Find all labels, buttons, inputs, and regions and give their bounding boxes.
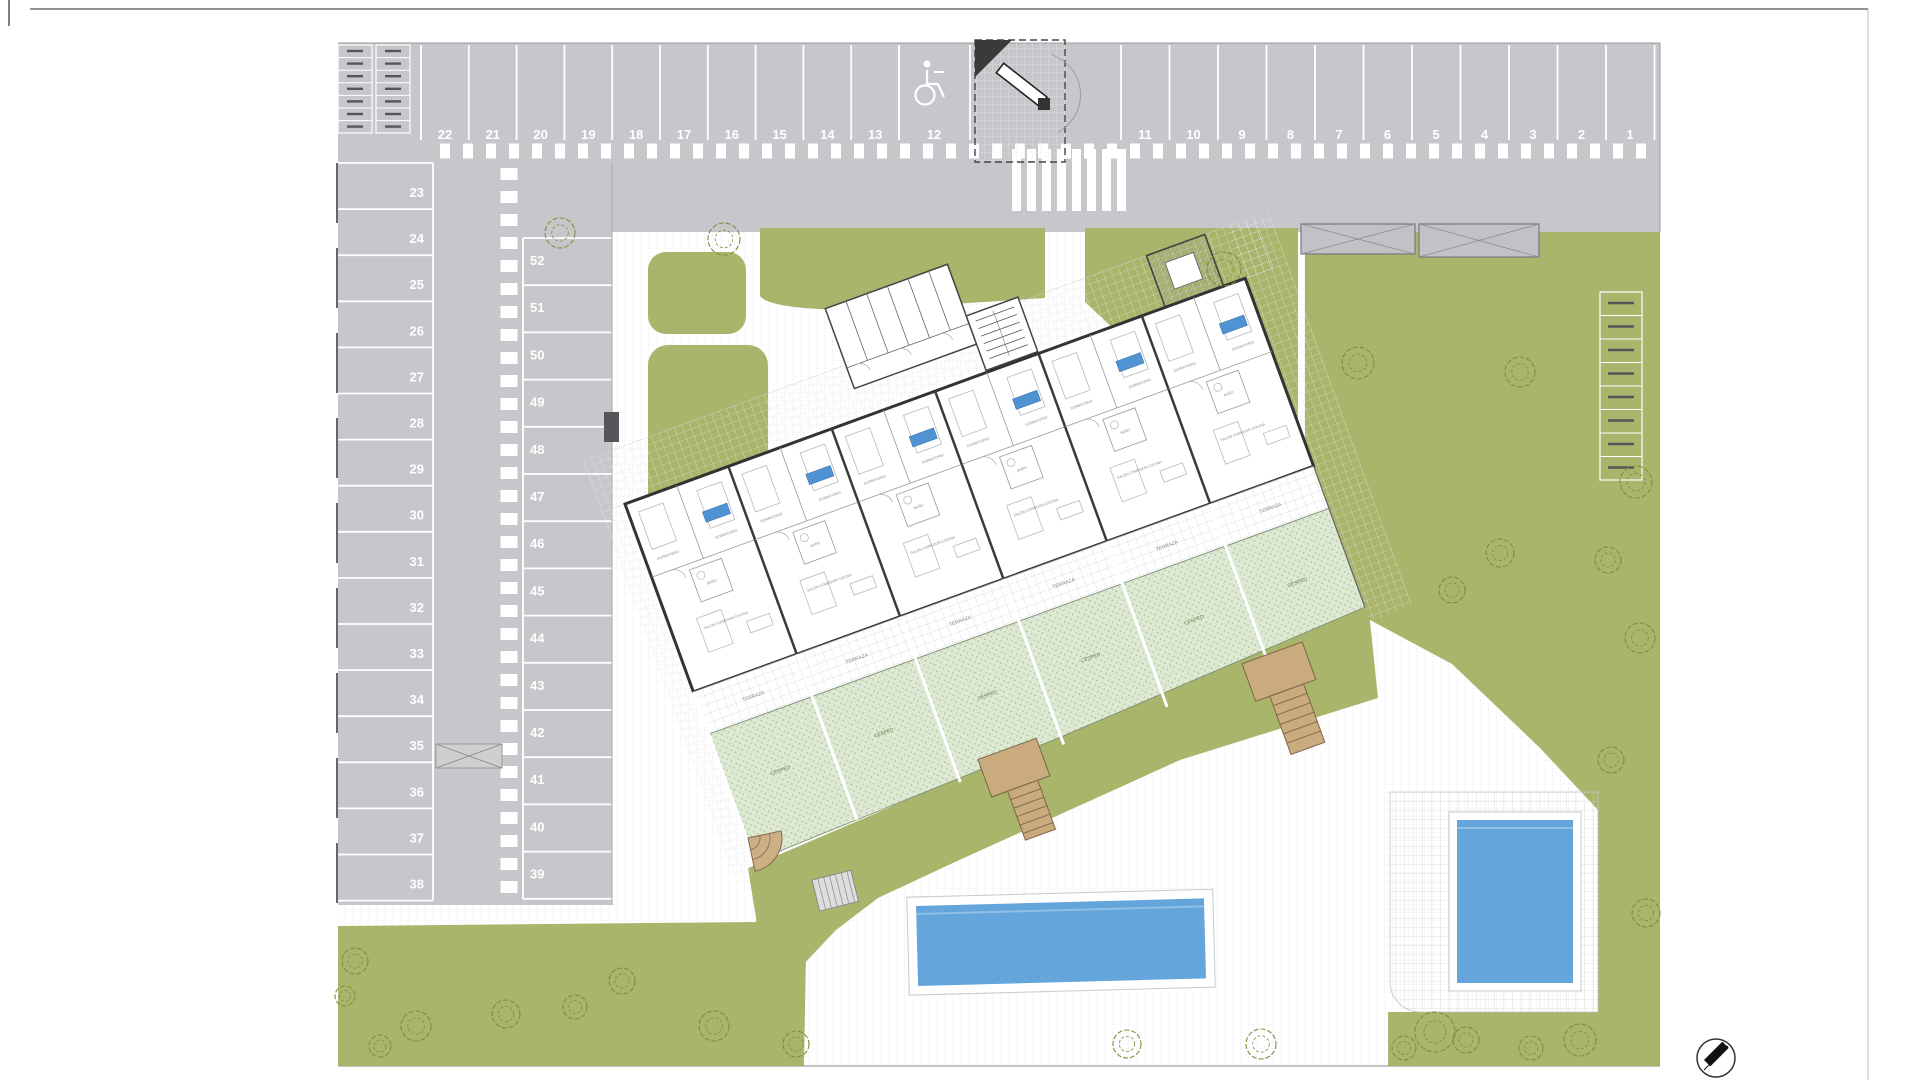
parking-space-number: 20 — [533, 127, 547, 142]
parking-space-number: 7 — [1335, 127, 1342, 142]
parking-space-number: 6 — [1384, 127, 1391, 142]
parking-space-number: 14 — [820, 127, 835, 142]
site-plan-drawing: 22212019181716151413 1110987654321 12 — [0, 0, 1920, 1080]
parking-space-number: 10 — [1186, 127, 1200, 142]
parking-space-number: 46 — [530, 536, 544, 551]
parking-space-number: 25 — [410, 277, 424, 292]
parking-space-number: 22 — [438, 127, 452, 142]
parking-space-number: 1 — [1626, 127, 1633, 142]
parking-space-number: 5 — [1432, 127, 1439, 142]
parking-space-number: 13 — [868, 127, 882, 142]
parking-space-number: 4 — [1481, 127, 1489, 142]
parking-space-number: 8 — [1287, 127, 1294, 142]
parking-space-number: 32 — [410, 600, 424, 615]
parking-space-number: 3 — [1529, 127, 1536, 142]
parking-space-number: 2 — [1578, 127, 1585, 142]
parking-space-number: 51 — [530, 300, 544, 315]
parking-space-number: 42 — [530, 725, 544, 740]
parking-space-number: 38 — [410, 877, 424, 892]
green-blob-upper-left — [648, 252, 746, 334]
parking-space-number: 12 — [927, 127, 941, 142]
parking-space-number: 47 — [530, 489, 544, 504]
pool-left — [907, 889, 1215, 995]
site-plan-sheet: { "sheet": { "type": "architectural-site… — [0, 0, 1920, 1080]
parking-space-number: 17 — [677, 127, 691, 142]
parking-space-number: 44 — [530, 631, 545, 646]
parking-space-number: 24 — [410, 231, 425, 246]
parking-space-number: 19 — [581, 127, 595, 142]
parking-space-number: 49 — [530, 395, 544, 410]
parking-space-number: 9 — [1238, 127, 1245, 142]
parking-space-number: 45 — [530, 583, 544, 598]
parking-space-number: 35 — [410, 738, 424, 753]
parking-space-number: 11 — [1138, 127, 1152, 142]
north-arrow-icon — [1697, 1039, 1735, 1077]
parking-space-number: 50 — [530, 347, 544, 362]
parking-space-number: 37 — [410, 830, 424, 845]
parking-space-number: 41 — [530, 772, 544, 787]
parking-space-number: 28 — [410, 416, 424, 431]
parking-space-number: 43 — [530, 678, 544, 693]
parking-space-number: 26 — [410, 323, 424, 338]
parking-space-number: 23 — [410, 185, 424, 200]
parking-space-number: 31 — [410, 554, 424, 569]
pool-right — [1449, 812, 1581, 991]
entrance-gatehouse — [975, 40, 1081, 162]
parking-space-number: 33 — [410, 646, 424, 661]
parking-space-number: 21 — [486, 127, 500, 142]
parking-space-number: 16 — [725, 127, 739, 142]
ramp-marking — [436, 744, 502, 768]
parking-space-number: 39 — [530, 867, 544, 882]
parking-space-number: 27 — [410, 369, 424, 384]
side-gate — [604, 412, 619, 442]
parking-space-number: 48 — [530, 442, 544, 457]
pergola-structures — [1301, 224, 1539, 257]
parking-space-number: 18 — [629, 127, 643, 142]
parking-space-number: 36 — [410, 784, 424, 799]
parking-space-number: 29 — [410, 462, 424, 477]
parking-space-number: 40 — [530, 819, 544, 834]
parking-space-number: 30 — [410, 508, 424, 523]
parking-space-number: 52 — [530, 253, 544, 268]
parking-space-number: 15 — [772, 127, 786, 142]
parking-space-number: 34 — [410, 692, 425, 707]
